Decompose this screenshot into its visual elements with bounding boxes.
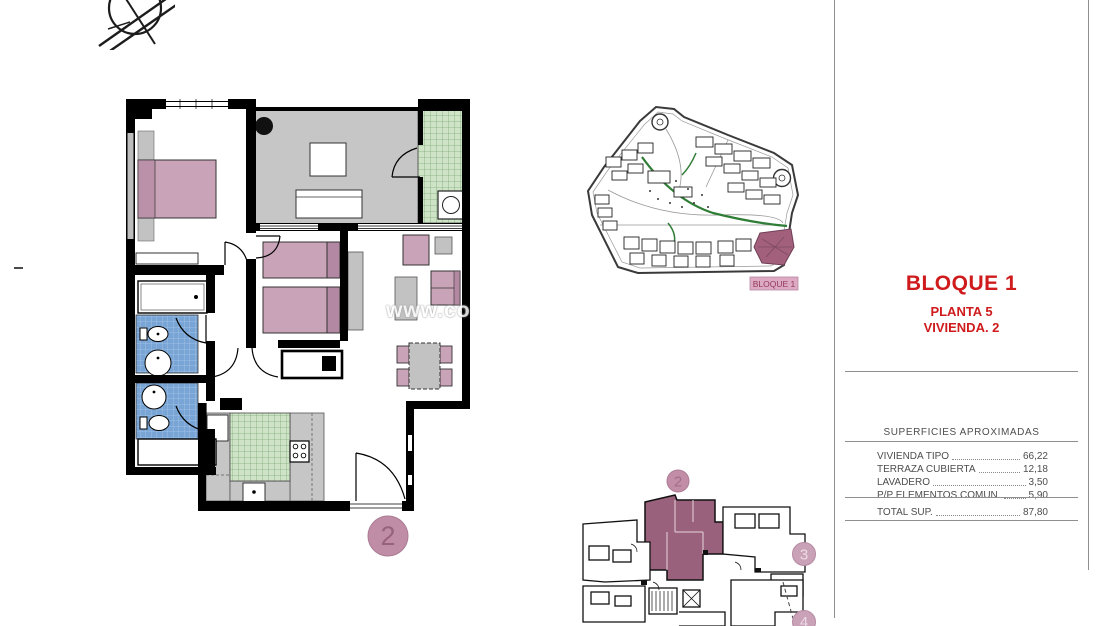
title-building: BLOQUE 1 xyxy=(835,272,1088,296)
divider-line xyxy=(845,371,1078,372)
key-plan-number-3: 3 xyxy=(800,547,808,564)
row-value: 5,90 xyxy=(1029,490,1048,501)
bedroom-1 xyxy=(136,131,216,264)
key-plan-badge-2: 2 xyxy=(667,470,689,492)
site-highlighted-block xyxy=(754,229,794,265)
terrace-bench xyxy=(296,190,362,218)
dot-leader xyxy=(1004,498,1026,499)
sink-1 xyxy=(145,350,171,376)
sink-2 xyxy=(142,385,166,409)
key-plan-core xyxy=(649,588,700,614)
table-line-mid xyxy=(845,497,1078,498)
terrace-plant xyxy=(255,117,273,135)
total-label: TOTAL SUP. xyxy=(877,507,933,518)
page-mark xyxy=(14,267,23,269)
key-plan-unit-2 xyxy=(645,495,723,580)
dot-leader xyxy=(933,485,1026,486)
total-value: 87,80 xyxy=(1023,507,1048,518)
hall-wardrobe xyxy=(282,351,342,378)
plan-sheet: 2 www.co xyxy=(0,0,1110,626)
row-label: TERRAZA CUBIERTA xyxy=(877,464,976,475)
site-block-label-text: BLOQUE 1 xyxy=(753,279,796,289)
armchair xyxy=(403,235,429,265)
table-row: TERRAZA CUBIERTA 12,18 xyxy=(877,463,1048,475)
key-plan-badge-3: 3 xyxy=(793,543,816,566)
washing-machine xyxy=(438,191,464,219)
dot-leader xyxy=(979,472,1020,473)
bedroom-2 xyxy=(263,242,340,333)
toilet-2 xyxy=(140,416,169,431)
table-line-bottom xyxy=(845,520,1078,521)
panel-border-right xyxy=(1088,0,1089,570)
watermark-text: www.co xyxy=(386,299,471,323)
key-plan-number-4: 4 xyxy=(800,614,808,626)
title-unit: VIVIENDA. 2 xyxy=(835,320,1088,335)
floor-plan-unit-badge: 2 xyxy=(368,516,408,556)
north-arrow-icon xyxy=(95,0,175,50)
table-row: P/P ELEMENTOS COMUN. 5,90 xyxy=(877,489,1048,501)
dot-leader xyxy=(952,459,1020,460)
table-line-top xyxy=(845,441,1078,442)
row-value: 3,50 xyxy=(1029,477,1048,488)
table-total-row: TOTAL SUP. 87,80 xyxy=(877,506,1048,518)
title-floor: PLANTA 5 xyxy=(835,304,1088,319)
roundabout-1 xyxy=(652,114,668,130)
toilet-1 xyxy=(140,327,168,342)
key-plan-badge-4: 4 xyxy=(793,611,816,626)
row-label: P/P ELEMENTOS COMUN. xyxy=(877,490,1001,501)
dining-set xyxy=(397,343,452,389)
table-row: VIVIENDA TIPO 66,22 xyxy=(877,450,1048,462)
key-plan: 2 3 4 xyxy=(575,462,823,626)
key-plan-number-2: 2 xyxy=(674,474,682,491)
table-row: LAVADERO 3,50 xyxy=(877,476,1048,488)
floor-plan-unit-number: 2 xyxy=(380,521,395,551)
dot-leader xyxy=(936,515,1020,516)
kitchen-sink xyxy=(243,483,265,502)
row-value: 12,18 xyxy=(1023,464,1048,475)
kitchen xyxy=(206,413,324,502)
row-value: 66,22 xyxy=(1023,451,1048,462)
terrace-table xyxy=(310,143,346,176)
areas-table-title: SUPERFICIES APROXIMADAS xyxy=(845,427,1078,438)
floor-plan: 2 xyxy=(118,85,488,565)
site-block-label: BLOQUE 1 xyxy=(750,277,798,290)
stove xyxy=(290,441,309,462)
row-label: LAVADERO xyxy=(877,477,930,488)
site-plan: BLOQUE 1 xyxy=(578,95,823,295)
row-label: VIVIENDA TIPO xyxy=(877,451,949,462)
